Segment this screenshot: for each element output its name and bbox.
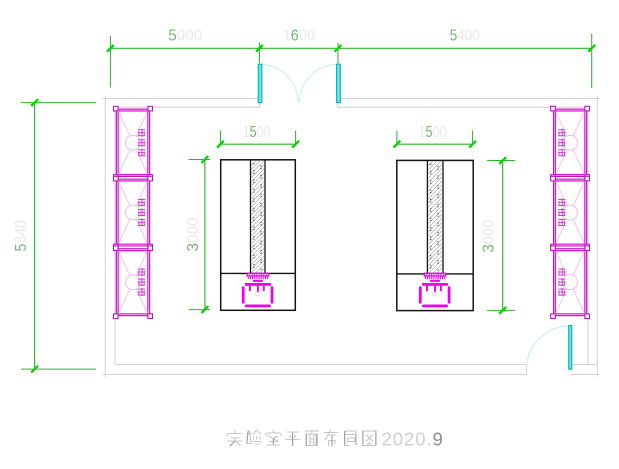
svg-text:5000: 5000 [168, 27, 202, 44]
svg-text:1600: 1600 [283, 27, 315, 44]
svg-text:1500: 1500 [243, 124, 271, 141]
svg-text:3000: 3000 [480, 219, 497, 252]
svg-text:5340: 5340 [13, 220, 30, 252]
svg-text:1500: 1500 [419, 124, 447, 141]
svg-text:2020.9: 2020.9 [382, 429, 444, 450]
svg-text:5400: 5400 [450, 27, 480, 44]
svg-text:3000: 3000 [185, 217, 202, 251]
